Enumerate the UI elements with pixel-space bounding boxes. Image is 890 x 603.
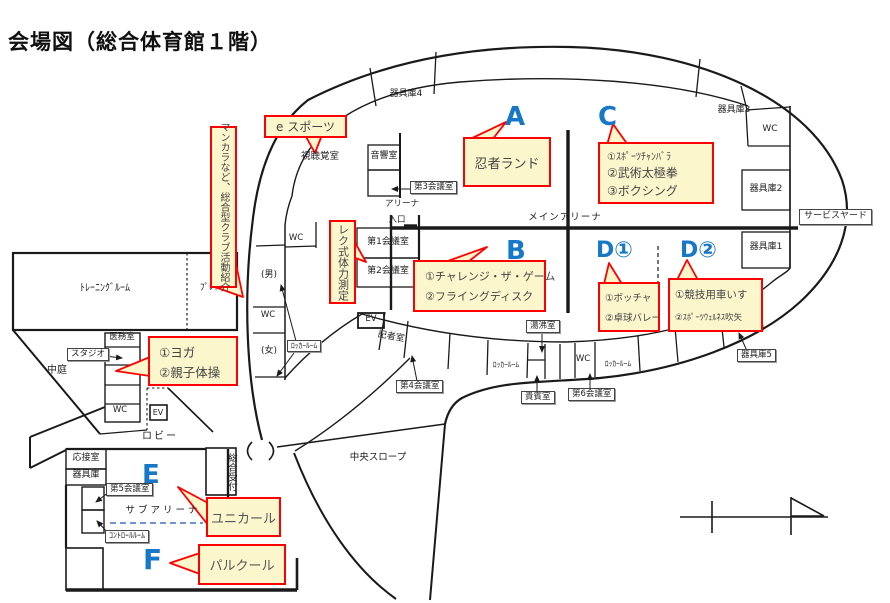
label-arena-entrance: 入口: [382, 216, 412, 226]
room-label-men: (男): [251, 270, 287, 280]
callout-zone-d2: ①競技用車いす ②ｽﾎﾟｰﾂｳｪﾙﾈｽ吹矢: [668, 278, 763, 332]
room-label-kiguko5: 器具庫5: [737, 349, 776, 362]
room-label-wc-annex: WC: [105, 406, 135, 416]
callout-d1-item1: ①ボッチャ: [605, 290, 653, 304]
room-label-wc-left-mid: WC: [253, 311, 283, 321]
room-label-locker-right: ﾛｯｶｰﾙｰﾑ: [595, 360, 641, 369]
room-label-ev-arena: EV: [359, 315, 383, 325]
zone-letter-d1: D①: [596, 240, 633, 262]
scale-icon: [680, 497, 828, 535]
room-label-training: ﾄﾚｰﾆﾝｸﾞﾙｰﾑ: [55, 283, 155, 295]
callout-parkour: パルクール: [198, 544, 286, 585]
callout-b-item1: ①チャレンジ・ザ・ゲーム: [425, 268, 534, 284]
door-icon: [248, 442, 274, 460]
callout-mancala-text: マンカラなど、総合型クラブ活動紹介: [216, 122, 231, 292]
label-sub-arena: サブアリーナ: [123, 506, 203, 517]
room-label-kihin: 貴賓室: [521, 391, 555, 404]
label-arena: アリーナ: [380, 200, 424, 210]
callout-c-item3: ③ボクシング: [607, 182, 705, 199]
room-label-kaigi3: 第3会議室: [410, 181, 457, 194]
room-label-kaigi4: 第4会議室: [396, 380, 443, 393]
callout-c-item1: ①ｽﾎﾟｰﾂﾁｬﾝﾊﾞﾗ: [607, 148, 705, 163]
callout-d2-item2: ②ｽﾎﾟｰﾂｳｪﾙﾈｽ吹矢: [675, 311, 756, 323]
room-label-studio: スタジオ: [67, 348, 109, 361]
callout-ninja-land: 忍者ランド: [463, 137, 551, 187]
room-label-wc-left-top: WC: [283, 234, 309, 244]
callout-zone-d1: ①ボッチャ ②卓球バレー: [598, 282, 660, 332]
page-title: 会場図（総合体育館１階）: [8, 26, 272, 56]
label-central-slope: 中央スロープ: [343, 453, 413, 464]
callout-zone-c: ①ｽﾎﾟｰﾂﾁｬﾝﾊﾞﾗ ②武術太極拳 ③ボクシング: [598, 142, 714, 204]
room-label-ev-lobby: EV: [149, 408, 167, 417]
label-lobby: ロビー: [135, 431, 185, 443]
room-label-kaigi6: 第6会議室: [568, 388, 615, 401]
room-label-kaigi1: 第1会議室: [357, 237, 419, 247]
room-label-kaigi2: 第2会議室: [357, 266, 419, 276]
room-label-kiguko-annex: 器具庫: [66, 470, 106, 480]
callout-unicurl-text: ユニカール: [211, 508, 276, 527]
room-label-kiguko2: 器具庫2: [741, 184, 791, 194]
room-label-onkyo: 音響室: [366, 151, 402, 161]
callout-c-item2: ②武術太極拳: [607, 164, 705, 181]
callout-ninja-text: 忍者ランド: [474, 153, 539, 172]
callout-yoga-item1: ①ヨガ: [159, 342, 227, 361]
callout-mancala: マンカラなど、総合型クラブ活動紹介: [210, 126, 237, 288]
zone-letter-c: C: [598, 104, 617, 130]
label-service-yard: サービスヤード: [799, 209, 872, 225]
callout-zone-b: ①チャレンジ・ザ・ゲーム ②フライングディスク: [413, 260, 546, 312]
room-label-locker-mid: ﾛｯｶｰﾙｰﾑ: [287, 340, 321, 352]
room-label-yuwakashi: 湯沸室: [526, 320, 560, 333]
room-label-locker-left: ﾛｯｶｰﾙｰﾑ: [483, 361, 529, 370]
room-label-wc-topright: WC: [755, 124, 785, 134]
room-label-wc-band: WC: [570, 355, 596, 365]
label-uketsuke: 総合受付: [206, 450, 236, 494]
callout-parkour-text: パルクール: [209, 555, 274, 574]
callout-b-item2: ②フライングディスク: [425, 288, 534, 304]
room-label-kiguko3: 器具庫3: [709, 105, 759, 115]
callout-d2-item1: ①競技用車いす: [675, 287, 756, 302]
zone-letter-d2: D②: [680, 240, 717, 262]
callout-d1-item2: ②卓球バレー: [605, 310, 653, 324]
room-label-kiguko4: 器具庫4: [381, 89, 431, 99]
room-label-shichokaku: 視聴覚室: [290, 152, 350, 163]
label-main-arena: メインアリーナ: [515, 213, 615, 224]
callout-unicurl: ユニカール: [206, 497, 281, 537]
callout-yoga: ①ヨガ ②親子体操: [148, 336, 238, 386]
zone-letter-f: F: [143, 546, 162, 574]
callout-rec-check: レク式体力測定: [329, 220, 356, 304]
callout-esports: e スポーツ: [264, 115, 347, 138]
room-label-control: ｺﾝﾄﾛｰﾙﾙｰﾑ: [105, 530, 149, 543]
room-label-kiguko1: 器具庫1: [741, 242, 791, 252]
floorplan-canvas: 会場図（総合体育館１階） 器具庫4 器具庫3 WC 器具庫2 器具庫1 視聴覚室…: [0, 0, 890, 603]
central-slope-walls: [277, 424, 445, 600]
zone-letter-a: A: [505, 104, 525, 130]
callout-rec-check-text: レク式体力測定: [335, 224, 351, 301]
room-label-nakaniwa: 中庭: [37, 365, 77, 377]
callout-esports-text: e スポーツ: [276, 118, 335, 135]
room-label-osetsu: 応接室: [66, 453, 106, 463]
room-label-women: (女): [251, 346, 287, 356]
room-label-imu: 医務室: [103, 333, 141, 343]
callout-yoga-item2: ②親子体操: [159, 362, 227, 381]
zone-letter-e: E: [142, 462, 160, 488]
